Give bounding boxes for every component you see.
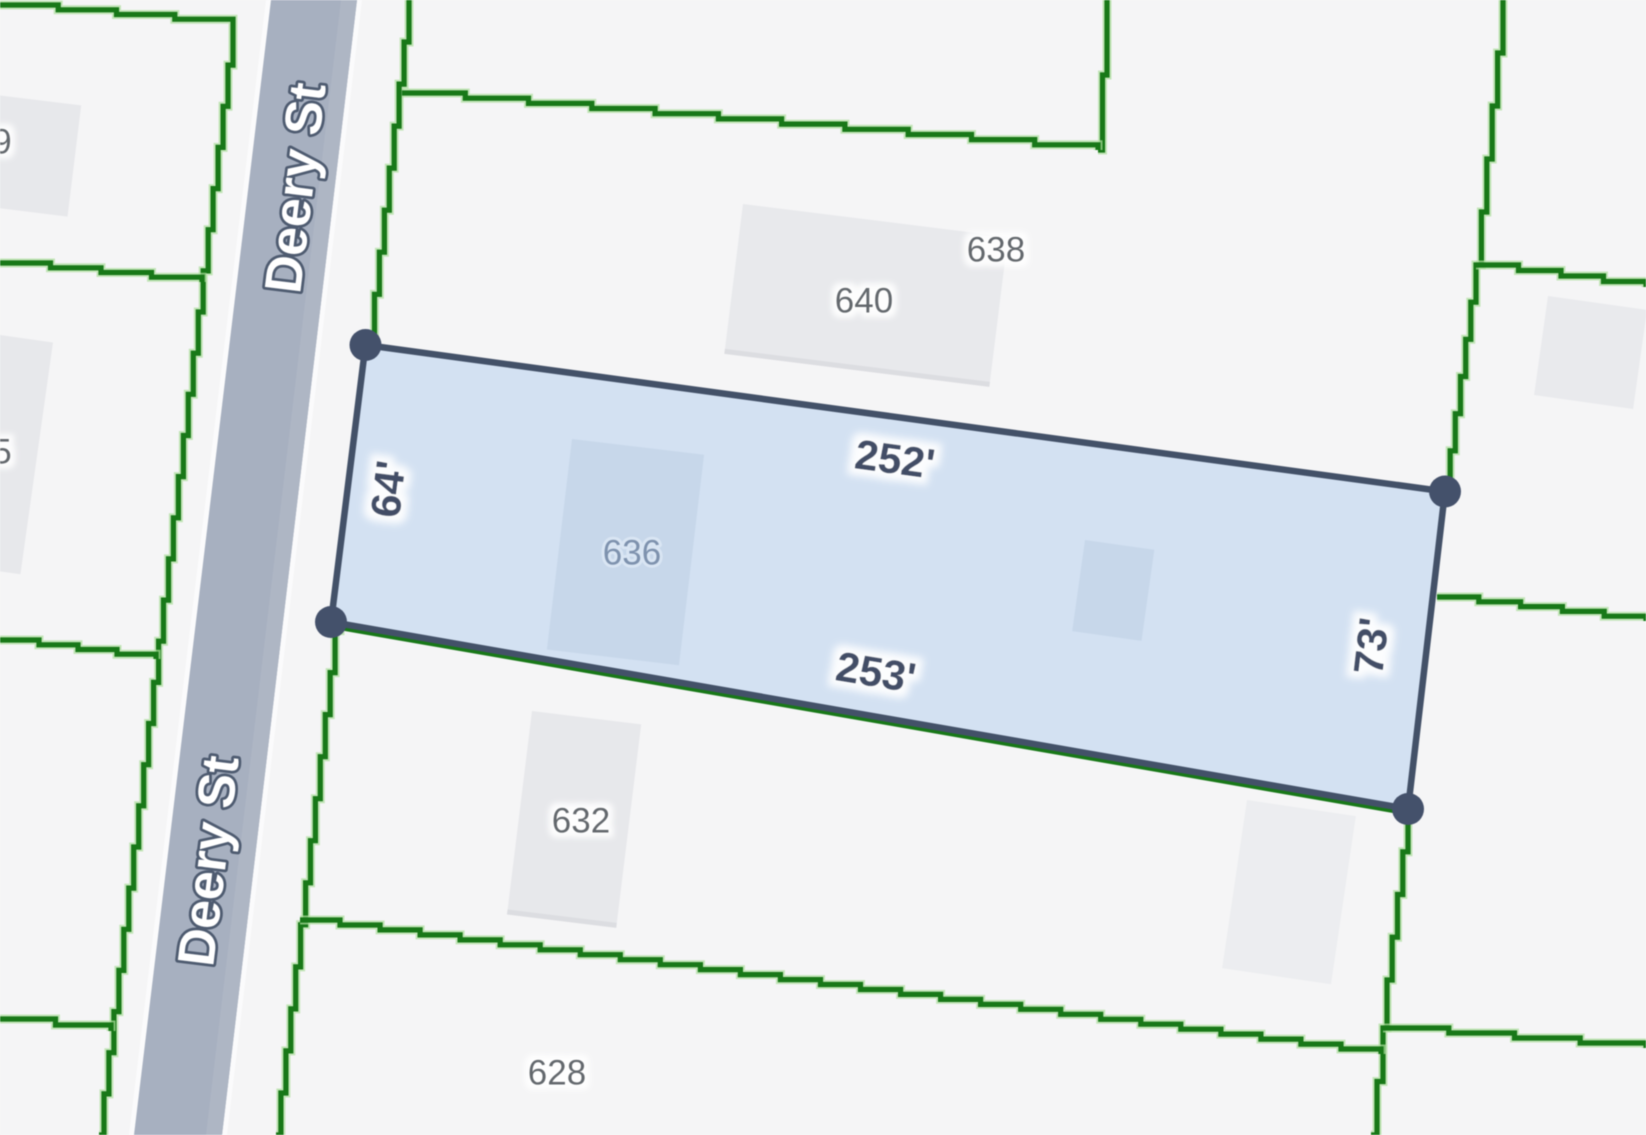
svg-text:64': 64' <box>361 458 415 520</box>
svg-text:5: 5 <box>0 433 12 472</box>
svg-text:640: 640 <box>835 282 893 321</box>
svg-text:636: 636 <box>603 534 661 573</box>
svg-text:638: 638 <box>967 231 1025 270</box>
svg-text:9: 9 <box>0 123 12 162</box>
svg-text:632: 632 <box>552 802 610 841</box>
svg-text:73': 73' <box>1344 615 1397 677</box>
svg-text:628: 628 <box>528 1054 586 1093</box>
